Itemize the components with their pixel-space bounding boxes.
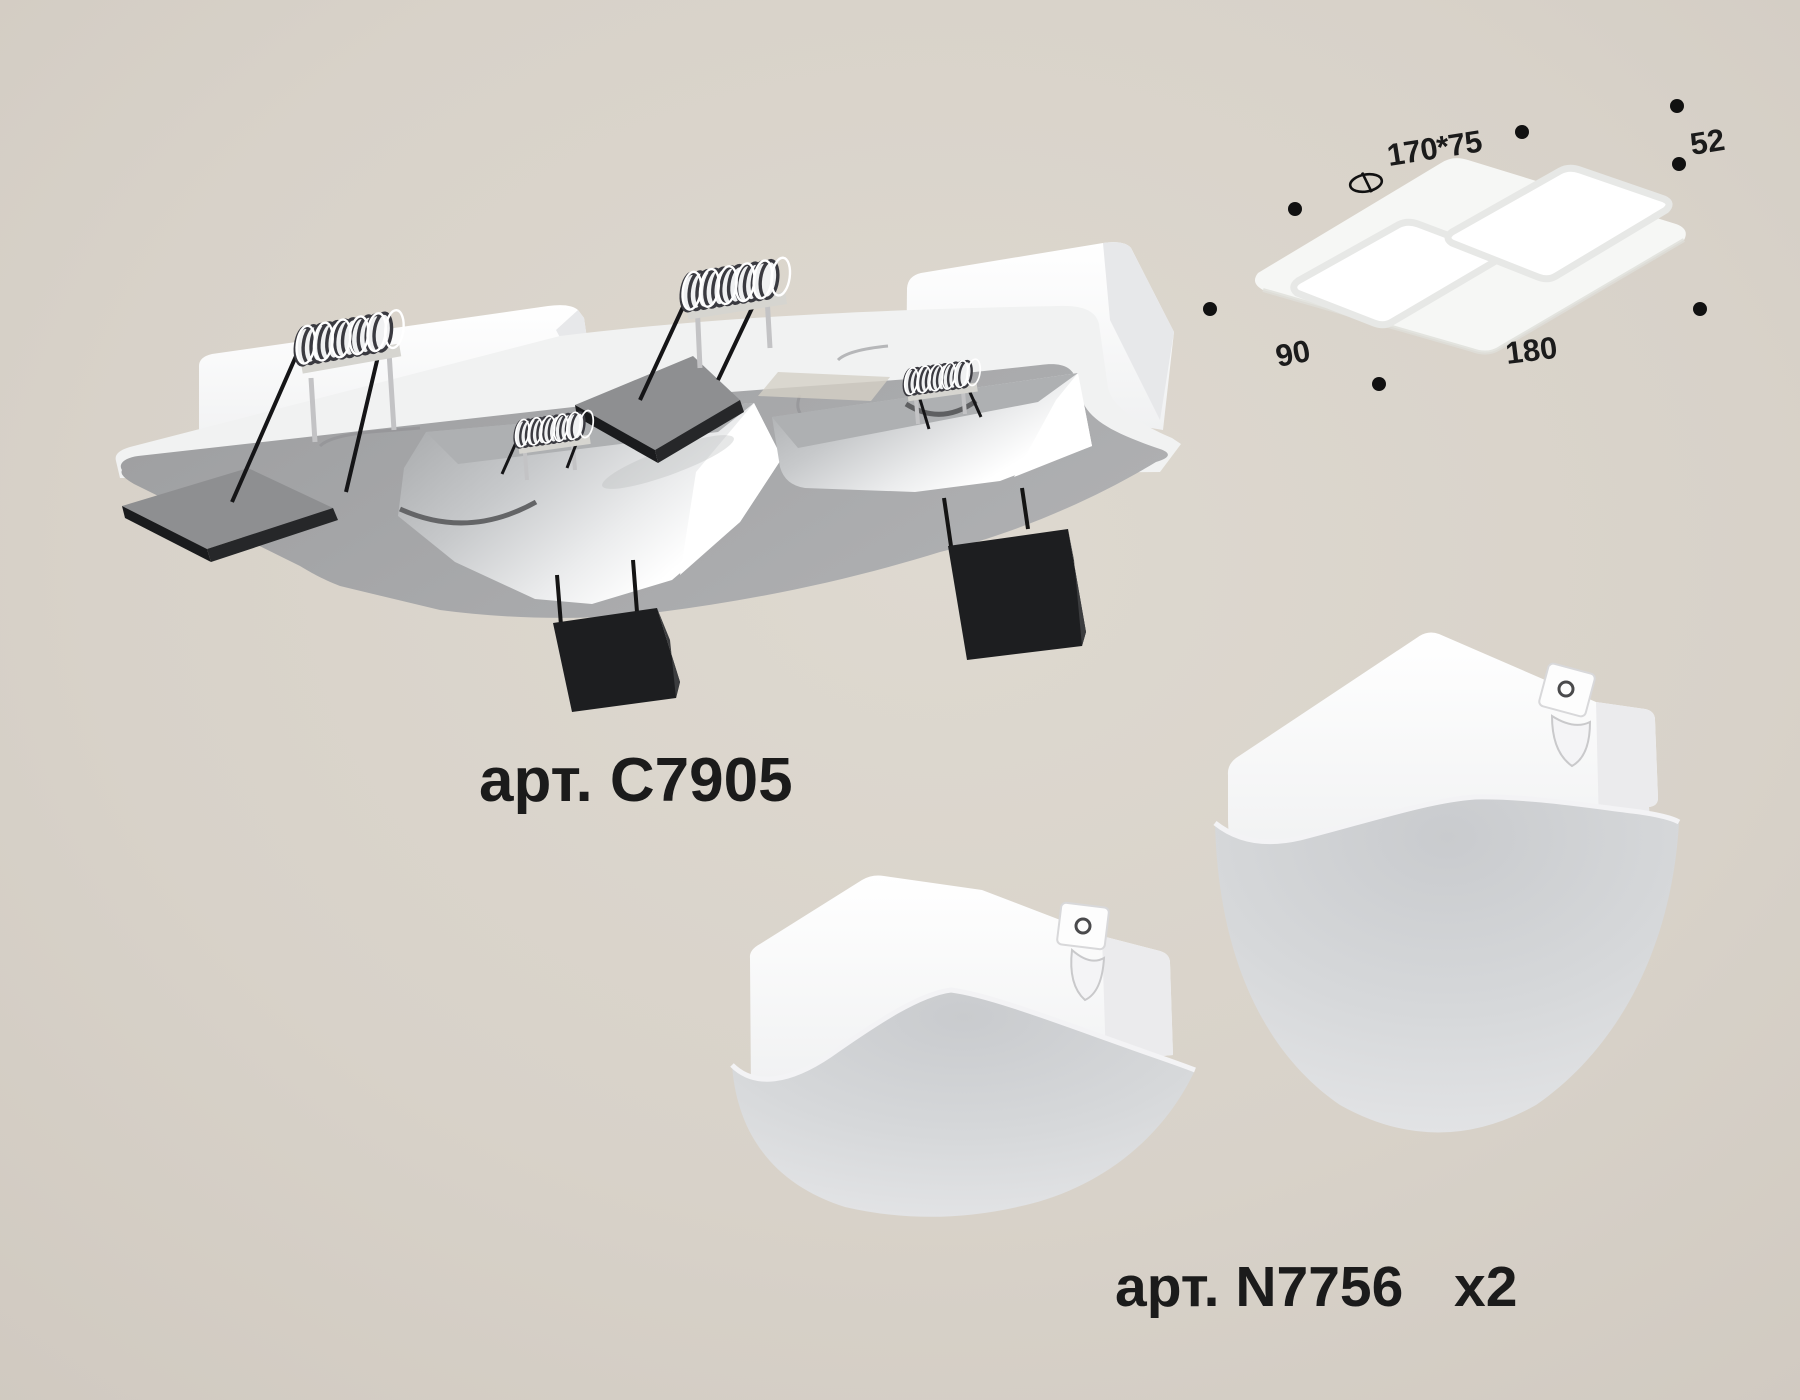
svg-text:52: 52	[1688, 122, 1728, 162]
svg-text:90: 90	[1273, 333, 1314, 374]
svg-text:180: 180	[1504, 330, 1560, 371]
svg-text:арт. C7905: арт. C7905	[479, 746, 793, 815]
svg-text:x2: x2	[1454, 1255, 1517, 1319]
svg-text:арт. N7756: арт. N7756	[1115, 1255, 1403, 1319]
